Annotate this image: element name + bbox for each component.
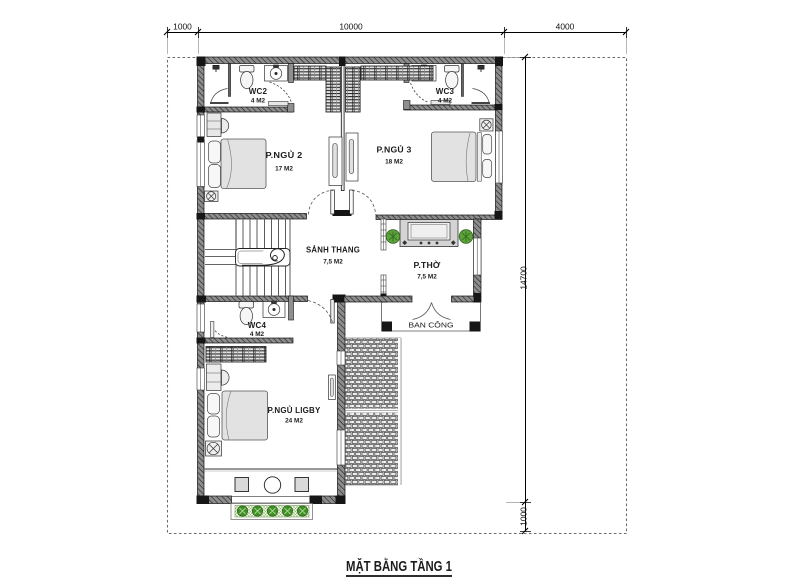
- svg-text:WC3: WC3: [436, 87, 455, 96]
- svg-text:1000: 1000: [173, 22, 192, 32]
- svg-text:MẶT BẰNG TẦNG 1: MẶT BẰNG TẦNG 1: [346, 557, 452, 575]
- svg-text:P.NGỦ LIGBY: P.NGỦ LIGBY: [268, 406, 321, 415]
- svg-text:P.NGỦ 3: P.NGỦ 3: [377, 146, 412, 155]
- svg-text:4 M2: 4 M2: [251, 98, 266, 105]
- svg-text:7,5 M2: 7,5 M2: [323, 259, 343, 266]
- svg-text:14700: 14700: [519, 266, 529, 290]
- svg-text:BAN CÔNG: BAN CÔNG: [409, 321, 454, 330]
- svg-text:4000: 4000: [556, 22, 575, 32]
- svg-text:18 M2: 18 M2: [385, 159, 403, 166]
- svg-text:24 M2: 24 M2: [285, 418, 303, 425]
- svg-text:WC2: WC2: [249, 87, 268, 96]
- svg-text:WC4: WC4: [248, 321, 267, 330]
- svg-text:P.NGỦ 2: P.NGỦ 2: [266, 151, 303, 160]
- svg-text:P.THỜ: P.THỜ: [414, 261, 441, 270]
- svg-text:1000: 1000: [519, 507, 529, 526]
- svg-text:SẢNH THANG: SẢNH THANG: [306, 246, 360, 255]
- svg-text:10000: 10000: [339, 22, 363, 32]
- svg-text:4 M2: 4 M2: [250, 331, 265, 338]
- svg-text:17 M2: 17 M2: [275, 166, 293, 173]
- svg-text:4 M2: 4 M2: [438, 98, 453, 105]
- svg-text:7,5 M2: 7,5 M2: [417, 274, 437, 281]
